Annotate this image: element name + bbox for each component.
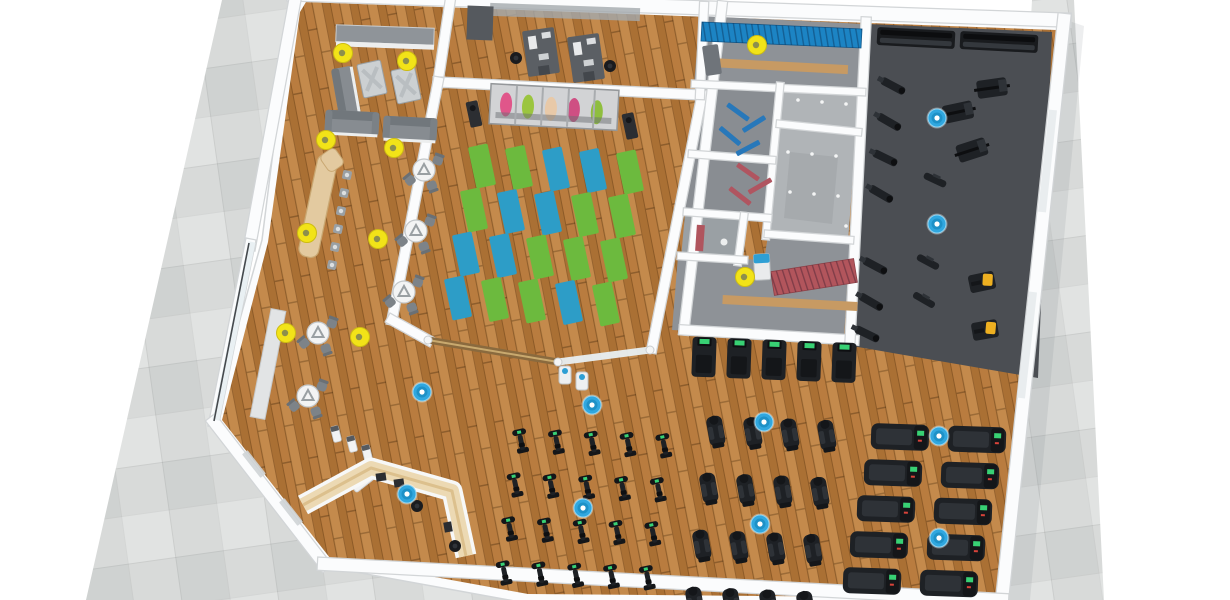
treadmills-item: [871, 423, 930, 451]
cafe-table: [413, 159, 435, 181]
treadmills-item: [864, 459, 923, 487]
treadmills-item: [857, 495, 916, 523]
bar-stool: [333, 224, 344, 235]
bar-stool: [336, 206, 347, 217]
stair-climbers-item: [761, 339, 786, 380]
shower-head: [810, 152, 814, 156]
reception-chair: [449, 540, 461, 552]
hotspot-marker-yellow[interactable]: [277, 324, 296, 343]
cafe-table: [393, 281, 415, 303]
hotspot-marker-yellow[interactable]: [298, 224, 317, 243]
hotspot-marker-yellow[interactable]: [351, 328, 370, 347]
office-chair: [604, 60, 616, 72]
shower-b-drain: [784, 152, 838, 224]
hotspot-marker-blue[interactable]: [573, 498, 594, 519]
hotspot-marker-blue[interactable]: [927, 214, 948, 235]
shower-head: [812, 192, 816, 196]
floorplan-3d-render: [0, 0, 1230, 600]
shower-head: [834, 154, 838, 158]
toilet-fixture: [721, 239, 728, 246]
freeweights-floor: [852, 24, 1052, 378]
reception-monitor: [443, 521, 453, 532]
office-desk: [567, 33, 605, 83]
office-chair: [510, 52, 522, 64]
hotspot-marker-blue[interactable]: [927, 108, 948, 129]
shower-head: [796, 98, 800, 102]
shower-head: [788, 190, 792, 194]
wall-toilet-south: [681, 256, 744, 260]
cafe-table: [405, 220, 427, 242]
water-cooler: [576, 372, 588, 390]
office-desk: [522, 27, 560, 77]
fence-post: [554, 358, 562, 366]
gym-floorplan-canvas: [0, 0, 1230, 600]
bar-stool: [342, 170, 353, 181]
fence-post: [424, 336, 432, 344]
shower-head: [844, 224, 848, 228]
treadmills-item: [941, 461, 1000, 489]
treadmills-item: [850, 531, 909, 559]
hotspot-marker-blue[interactable]: [754, 412, 775, 433]
hotspot-marker-yellow[interactable]: [736, 268, 755, 287]
shower-head: [786, 150, 790, 154]
reception-monitor: [375, 472, 386, 481]
hotspot-marker-blue[interactable]: [412, 382, 433, 403]
hotspot-marker-yellow[interactable]: [398, 52, 417, 71]
shower-head: [844, 102, 848, 106]
shower-head: [836, 194, 840, 198]
treadmills-item: [934, 497, 993, 525]
hotspot-marker-yellow[interactable]: [385, 139, 404, 158]
treadmills-item: [920, 569, 979, 597]
stair-climbers-item: [831, 342, 856, 383]
hotspot-marker-blue[interactable]: [929, 426, 950, 447]
treadmills-item: [843, 567, 902, 595]
hotspot-marker-yellow[interactable]: [334, 44, 353, 63]
stair-climbers-item: [796, 341, 821, 382]
storage-cabinet: [466, 6, 493, 41]
stair-climbers-item: [726, 338, 751, 379]
hotspot-marker-blue[interactable]: [750, 514, 771, 535]
hotspot-marker-blue[interactable]: [397, 484, 418, 505]
bar-stool: [327, 260, 338, 271]
fence-post: [646, 346, 654, 354]
hotspot-marker-yellow[interactable]: [317, 131, 336, 150]
shower-head: [820, 100, 824, 104]
treadmills-item: [948, 425, 1007, 453]
bar-stool: [330, 242, 341, 253]
cafe-table: [307, 322, 329, 344]
studio-video-wall: [489, 84, 619, 131]
stair-climbers-item: [691, 337, 716, 378]
hotspot-marker-yellow[interactable]: [748, 36, 767, 55]
water-cooler: [559, 366, 571, 384]
bar-stool: [339, 188, 350, 199]
cafe-table: [297, 385, 319, 407]
hotspot-marker-blue[interactable]: [929, 528, 950, 549]
hotspot-marker-blue[interactable]: [582, 395, 603, 416]
vending-machine: [753, 254, 770, 281]
hotspot-marker-yellow[interactable]: [369, 230, 388, 249]
